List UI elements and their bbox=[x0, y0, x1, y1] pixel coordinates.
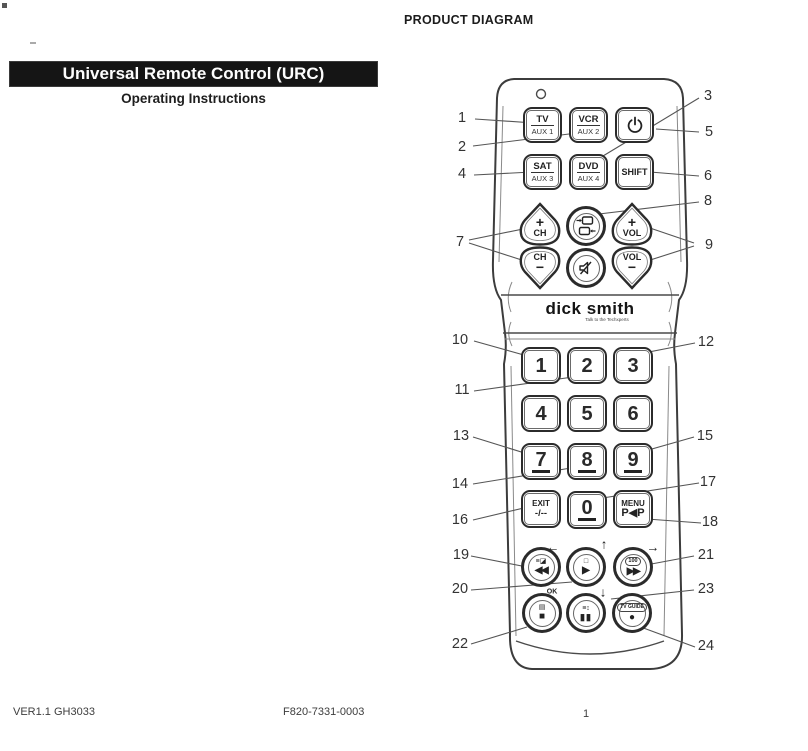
digit-2: 2 bbox=[581, 356, 592, 376]
callout-14: 14 bbox=[452, 476, 468, 492]
footer-doc-code: F820-7331-0003 bbox=[283, 706, 364, 718]
callout-13: 13 bbox=[453, 428, 469, 444]
sat-aux3-button: SAT AUX 3 bbox=[523, 154, 562, 190]
pause-top-icon: ≡↕ bbox=[582, 605, 590, 612]
callout-24: 24 bbox=[698, 638, 714, 654]
fast-forward-button: 100 ▶▶ bbox=[613, 547, 653, 587]
tv-av-icon bbox=[575, 215, 597, 237]
callout-6: 6 bbox=[704, 168, 712, 184]
aux2-label: AUX 2 bbox=[578, 128, 600, 136]
tv-label: TV bbox=[531, 115, 554, 127]
brand-area: dick smith Talk to the Techxperts bbox=[505, 300, 675, 323]
exit-button: EXIT -/-- bbox=[521, 490, 561, 528]
callout-20: 20 bbox=[452, 581, 468, 597]
callout-3: 3 bbox=[704, 88, 712, 104]
digit-4: 4 bbox=[535, 404, 546, 424]
digit-4-button: 4 bbox=[521, 395, 561, 432]
digit-5-button: 5 bbox=[567, 395, 607, 432]
title-banner: Universal Remote Control (URC) bbox=[10, 62, 377, 86]
callout-23: 23 bbox=[698, 581, 714, 597]
manual-page: PRODUCT DIAGRAM Universal Remote Control… bbox=[0, 0, 808, 751]
shift-button: SHIFT bbox=[615, 154, 654, 190]
callout-12: 12 bbox=[698, 334, 714, 350]
subtitle: Operating Instructions bbox=[10, 91, 377, 106]
callout-8: 8 bbox=[704, 193, 712, 209]
brand-logo: dick smith bbox=[505, 300, 675, 317]
led-indicator bbox=[537, 90, 546, 99]
shift-label: SHIFT bbox=[622, 168, 648, 177]
rewind-button: ≡◪ ◀◀ bbox=[521, 547, 561, 587]
page-title: PRODUCT DIAGRAM bbox=[404, 13, 534, 27]
stop-button: ▤ ■ bbox=[522, 593, 562, 633]
power-icon bbox=[626, 116, 644, 134]
digit-5: 5 bbox=[581, 404, 592, 424]
tv-av-button bbox=[566, 206, 606, 246]
callout-4: 4 bbox=[458, 166, 466, 182]
callout-10: 10 bbox=[452, 332, 468, 348]
channel-down-button: CH − bbox=[519, 246, 561, 290]
callout-15: 15 bbox=[697, 428, 713, 444]
volume-up-button: + VOL bbox=[611, 202, 653, 246]
callout-7: 7 bbox=[456, 234, 464, 250]
digit-0: 0 bbox=[578, 499, 595, 521]
arrow-down-icon: ↓ bbox=[600, 585, 607, 600]
digit-9: 9 bbox=[624, 451, 641, 473]
pause-icon: ▮▮ bbox=[580, 613, 592, 622]
rewind-icon: ◀◀ bbox=[535, 566, 547, 576]
vcr-aux2-button: VCR AUX 2 bbox=[569, 107, 608, 143]
digit-3-button: 3 bbox=[613, 347, 653, 384]
callout-22: 22 bbox=[452, 636, 468, 652]
callout-5: 5 bbox=[705, 124, 713, 140]
callout-2: 2 bbox=[458, 139, 466, 155]
scan-artifact bbox=[2, 3, 7, 8]
vol-label: VOL bbox=[623, 229, 642, 238]
tv-aux1-button: TV AUX 1 bbox=[523, 107, 562, 143]
brand-tagline: Talk to the Techxperts bbox=[539, 318, 675, 323]
digit-1-button: 1 bbox=[521, 347, 561, 384]
mute-icon bbox=[576, 258, 596, 278]
callout-18: 18 bbox=[702, 514, 718, 530]
aux3-label: AUX 3 bbox=[532, 175, 554, 183]
display-icon: ▤ bbox=[539, 604, 546, 611]
pause-button: ≡↕ ▮▮ bbox=[566, 593, 606, 633]
callout-9: 9 bbox=[705, 237, 713, 253]
digit-3: 3 bbox=[627, 356, 638, 376]
recall-icon: ≡◪ bbox=[536, 558, 547, 565]
fast-forward-icon: ▶▶ bbox=[627, 567, 639, 577]
arrow-right-icon: → bbox=[647, 540, 660, 555]
arrow-up-icon: ↑ bbox=[601, 537, 608, 552]
callout-11: 11 bbox=[454, 382, 469, 398]
scan-artifact bbox=[30, 42, 36, 44]
volume-down-button: VOL − bbox=[611, 246, 653, 290]
minus-sign: − bbox=[536, 262, 544, 273]
play-shape-icon: □ bbox=[584, 558, 588, 565]
power-button bbox=[615, 107, 654, 143]
digit-0-button: 0 bbox=[567, 491, 607, 529]
digit-9-button: 9 bbox=[613, 443, 653, 480]
digit-7-button: 7 bbox=[521, 443, 561, 480]
aux1-label: AUX 1 bbox=[532, 128, 554, 136]
digit-8-button: 8 bbox=[567, 443, 607, 480]
exit-label: EXIT bbox=[532, 500, 550, 508]
callout-1: 1 bbox=[458, 110, 466, 126]
dvd-aux4-button: DVD AUX 4 bbox=[569, 154, 608, 190]
digit-6: 6 bbox=[627, 404, 638, 424]
callout-16: 16 bbox=[452, 512, 468, 528]
hundred-label: 100 bbox=[625, 557, 640, 566]
callout-21: 21 bbox=[698, 547, 714, 563]
digit-1: 1 bbox=[535, 356, 546, 376]
dvd-label: DVD bbox=[577, 162, 600, 174]
record-icon: ● bbox=[629, 613, 635, 623]
aux4-label: AUX 4 bbox=[578, 175, 600, 183]
menu-pp-label: P◀P bbox=[621, 508, 644, 519]
mute-button bbox=[566, 248, 606, 288]
channel-up-button: + CH bbox=[519, 202, 561, 246]
callout-17: 17 bbox=[700, 474, 716, 490]
ch-label: CH bbox=[534, 229, 547, 238]
minus-sign: − bbox=[628, 262, 636, 273]
plus-sign: + bbox=[628, 217, 636, 228]
play-button: □ ▶ bbox=[566, 547, 606, 587]
menu-button: MENU P◀P bbox=[613, 490, 653, 528]
footer-version: VER1.1 GH3033 bbox=[13, 706, 95, 718]
digit-6-button: 6 bbox=[613, 395, 653, 432]
tv-guide-label: TV GUIDE bbox=[617, 603, 647, 612]
stop-icon: ■ bbox=[539, 612, 545, 622]
record-tv-guide-button: TV GUIDE ● bbox=[612, 593, 652, 633]
play-icon: ▶ bbox=[582, 566, 590, 576]
remote-outline bbox=[0, 0, 808, 751]
callout-19: 19 bbox=[453, 547, 469, 563]
exit-dash-label: -/-- bbox=[535, 509, 547, 519]
plus-sign: + bbox=[536, 217, 544, 228]
footer-page-number: 1 bbox=[583, 708, 589, 720]
sat-label: SAT bbox=[531, 162, 554, 174]
digit-2-button: 2 bbox=[567, 347, 607, 384]
digit-8: 8 bbox=[578, 451, 595, 473]
vcr-label: VCR bbox=[577, 115, 600, 127]
digit-7: 7 bbox=[532, 451, 549, 473]
